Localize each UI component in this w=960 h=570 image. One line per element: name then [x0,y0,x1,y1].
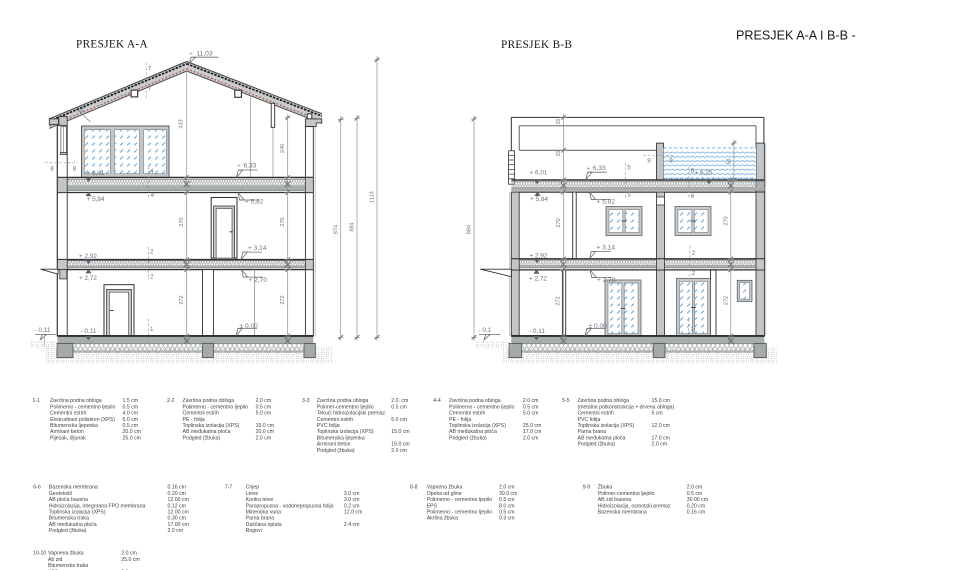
svg-text:AB ploča bazena: AB ploča bazena [49,497,88,503]
svg-text:Završna podna obloga: Završna podna obloga [183,398,235,404]
svg-text:Tekući hidroizolacijski premaz: Tekući hidroizolacijski premaz [317,411,386,417]
svg-text:- 0,11: - 0,11 [81,328,97,335]
svg-text:6: 6 [691,168,695,175]
svg-text:2-2: 2-2 [167,398,175,404]
svg-text:5: 5 [627,192,631,199]
svg-text:12.0 cm: 12.0 cm [344,510,362,516]
svg-text:PRESJEK A-A I B-B -: PRESJEK A-A I B-B - [736,29,856,43]
svg-text:+ 6,01: + 6,01 [87,170,105,177]
svg-text:0.5 cm: 0.5 cm [499,510,515,516]
svg-text:AB međukatna ploča: AB međukatna ploča [449,429,497,435]
svg-text:Vapnena žbuka: Vapnena žbuka [48,551,84,557]
svg-text:Toplinska izolacija (XPS): Toplinska izolacija (XPS) [578,423,635,429]
svg-text:0.30 cm: 0.30 cm [168,516,186,522]
svg-text:874: 874 [333,225,339,234]
svg-text:11,03: 11,03 [197,50,213,57]
svg-text:17.0 cm: 17.0 cm [652,435,670,441]
svg-text:Parna brana: Parna brana [246,516,275,522]
svg-text:+ 6,25: + 6,25 [695,170,713,177]
svg-text:12.0 cm: 12.0 cm [652,423,670,429]
svg-text:2.0 cm: 2.0 cm [168,528,184,534]
svg-text:25.0 cm: 25.0 cm [523,423,541,429]
svg-text:Bazenska membrana: Bazenska membrana [598,510,647,516]
svg-text:PVC folija: PVC folija [317,423,340,429]
svg-text:0.20 cm: 0.20 cm [687,503,705,509]
svg-text:Žbuka: Žbuka [598,483,613,491]
svg-text:- 0,11: - 0,11 [529,328,545,335]
svg-text:+ 2,92: + 2,92 [79,253,97,260]
svg-text:+ 6,01: + 6,01 [530,170,548,177]
svg-text:Akrilna žbuka: Akrilna žbuka [427,516,458,522]
svg-text:PE - folija: PE - folija [449,417,471,423]
svg-text:Toplinska izolacija (XPS): Toplinska izolacija (XPS) [183,423,240,429]
svg-text:25.0 cm: 25.0 cm [123,435,141,441]
svg-text:2.0 cm: 2.0 cm [256,398,272,404]
svg-text:884: 884 [350,222,356,231]
svg-text:3.0 cm: 3.0 cm [344,491,360,497]
svg-text:8: 8 [50,166,54,173]
svg-text:AB međukatna ploča: AB međukatna ploča [183,429,231,435]
svg-text:Kontra letve: Kontra letve [246,497,274,503]
svg-text:2: 2 [692,250,696,257]
svg-text:Geotekstil: Geotekstil [49,491,72,497]
svg-text:6,33: 6,33 [244,163,257,170]
svg-text:PVC folija: PVC folija [578,417,601,423]
svg-text:1: 1 [690,326,694,333]
svg-text:2.0 cm: 2.0 cm [121,551,137,557]
svg-text:+ 2,72: + 2,72 [529,275,547,282]
svg-text:Toplinska izolacija (XPS): Toplinska izolacija (XPS) [317,429,374,435]
svg-text:2.0 cm: 2.0 cm [391,448,407,454]
svg-text:272: 272 [723,296,729,305]
svg-text:0.5 cm: 0.5 cm [391,404,407,410]
svg-text:+ 2,92: + 2,92 [530,252,548,259]
svg-text:Polimerno - cementno ljepilo: Polimerno - cementno ljepilo [50,404,116,410]
svg-text:17.0 cm: 17.0 cm [523,429,541,435]
svg-text:Armirani beton: Armirani beton [50,429,84,435]
svg-text:Ab zid: Ab zid [48,557,63,563]
svg-text:+ 2,70: + 2,70 [597,277,616,284]
svg-text:Polimerno - cementno ljepilo: Polimerno - cementno ljepilo [449,404,515,410]
svg-text:0.5 cm: 0.5 cm [687,491,703,497]
svg-text:5-5: 5-5 [562,398,570,404]
svg-text:10-10: 10-10 [33,551,46,557]
svg-text:5.0 cm: 5.0 cm [256,411,272,417]
svg-text:7: 7 [148,66,152,73]
svg-text:Bitumenska ljepenka: Bitumenska ljepenka [50,423,98,429]
svg-text:5: 5 [627,164,631,171]
svg-text:272: 272 [556,296,562,305]
svg-text:+ 3,14: + 3,14 [248,245,267,252]
svg-text:0.3 cm: 0.3 cm [499,516,515,522]
svg-text:AB zid bazena: AB zid bazena [598,497,632,503]
svg-text:4-4: 4-4 [433,398,441,404]
svg-text:4.0 cm: 4.0 cm [123,411,139,417]
svg-text:2.4 cm: 2.4 cm [344,522,360,528]
svg-text:Bitumenska traka: Bitumenska traka [49,516,89,522]
svg-text:4: 4 [150,168,154,175]
svg-text:+ 5,84: + 5,84 [87,196,105,203]
svg-text:1.5 cm: 1.5 cm [123,398,139,404]
svg-text:Cementni estrih: Cementni estrih [578,411,614,417]
svg-text:Cementni estrih: Cementni estrih [449,411,485,417]
svg-text:Toplinska izolacija (XPS): Toplinska izolacija (XPS) [449,423,506,429]
svg-text:Bitumenska ljepenka: Bitumenska ljepenka [317,435,365,441]
svg-text:4: 4 [151,192,155,199]
svg-text:272: 272 [280,295,286,304]
svg-text:Podgled (žbuka): Podgled (žbuka) [317,448,355,454]
svg-text:06: 06 [80,107,86,113]
svg-text:270: 270 [179,217,185,226]
svg-text:7: 7 [148,86,152,93]
svg-text:272: 272 [179,295,185,304]
svg-text:PE - folija: PE - folija [183,417,205,423]
svg-text:30.00 cm: 30.00 cm [687,497,708,503]
svg-text:- 0,11: - 0,11 [35,327,51,334]
svg-text:20.0 cm: 20.0 cm [123,429,141,435]
svg-text:Bitumenska traka: Bitumenska traka [48,563,88,569]
svg-text:9: 9 [647,157,651,164]
svg-text:8-8: 8-8 [410,485,418,491]
svg-text:270: 270 [556,218,562,227]
svg-text:2: 2 [692,270,696,277]
svg-text:884: 884 [467,225,473,234]
svg-text:0.12 cm: 0.12 cm [168,503,186,509]
svg-text:9: 9 [669,157,673,164]
svg-text:EPS: EPS [427,503,438,509]
svg-text:8: 8 [73,166,77,173]
svg-text:Parna brana: Parna brana [578,429,607,435]
svg-text:Završna podna obloga: Završna podna obloga [449,398,501,404]
svg-text:Vapnena žbuka: Vapnena žbuka [427,485,463,491]
svg-text:2.0 cm: 2.0 cm [256,435,272,441]
svg-text:Rogovi: Rogovi [246,528,262,534]
svg-text:2: 2 [150,273,154,280]
svg-text:20.0 cm: 20.0 cm [256,429,274,435]
svg-text:6.0 cm: 6.0 cm [123,417,139,423]
svg-text:0.5 cm: 0.5 cm [123,423,139,429]
svg-text:Opeka od gline: Opeka od gline [427,491,462,497]
svg-text:20: 20 [556,119,562,125]
svg-text:270: 270 [723,216,729,225]
svg-text:Daščana oplata: Daščana oplata [246,522,282,528]
svg-text:15.0 cm: 15.0 cm [391,442,409,448]
svg-text:12.00 cm: 12.00 cm [168,497,189,503]
svg-text:6,33: 6,33 [593,165,606,172]
svg-text:Cementni estrih: Cementni estrih [317,417,353,423]
svg-text:2.0 cm: 2.0 cm [499,485,515,491]
svg-text:5.0 cm: 5.0 cm [391,417,407,423]
svg-text:433: 433 [179,119,185,128]
svg-text:0.5 cm: 0.5 cm [123,404,139,410]
svg-text:(metalna potkonstrukcija + drv: (metalna potkonstrukcija + drvena obloga… [578,404,675,410]
svg-text:Završna podna obloga: Završna podna obloga [578,398,630,404]
svg-text:2.0 cm: 2.0 cm [687,485,703,491]
svg-text:PRESJEK B-B: PRESJEK B-B [501,39,572,51]
svg-text:Podgled (žbuka): Podgled (žbuka) [183,435,221,441]
svg-text:Podgled (žbuka): Podgled (žbuka) [49,528,87,534]
svg-text:Završna podna obloga: Završna podna obloga [317,398,369,404]
svg-text:15.0 cm: 15.0 cm [391,429,409,435]
svg-text:1114: 1114 [370,191,376,203]
svg-text:0.5 cm: 0.5 cm [256,404,272,410]
svg-text:5.0 cm: 5.0 cm [523,411,539,417]
svg-text:+ 3,14: + 3,14 [597,244,616,251]
svg-text:Završna podna obloga: Završna podna obloga [50,398,102,404]
svg-text:Mineralna vuna: Mineralna vuna [246,510,282,516]
svg-text:Podgled (žbuka): Podgled (žbuka) [449,435,487,441]
svg-text:2.0. cm: 2.0. cm [391,398,408,404]
svg-text:Polimerno - cementno ljepilo: Polimerno - cementno ljepilo [427,497,493,503]
svg-text:Polimerno - cementno ljepilo: Polimerno - cementno ljepilo [183,404,249,410]
svg-text:Crijep: Crijep [246,485,260,491]
svg-text:2: 2 [150,249,154,256]
svg-text:0.20 cm: 0.20 cm [168,491,186,497]
svg-text:AB međukatna ploča: AB međukatna ploča [578,435,626,441]
svg-text:0.5 cm: 0.5 cm [499,497,515,503]
svg-text:50: 50 [726,159,732,165]
svg-text:Polimer-cementno ljepilo: Polimer-cementno ljepilo [317,404,374,410]
svg-text:30.0 cm: 30.0 cm [499,491,517,497]
svg-text:+ 5,84: + 5,84 [530,196,548,203]
svg-text:0.2 cm: 0.2 cm [344,503,360,509]
svg-text:8.0 cm: 8.0 cm [499,503,515,509]
svg-text:Pijesak, šljunak: Pijesak, šljunak [50,435,86,441]
svg-text:6-6: 6-6 [33,485,41,491]
svg-text:Armirani beton: Armirani beton [317,442,351,448]
svg-text:0.16 cm: 0.16 cm [687,510,705,516]
svg-text:Bazenska membrana: Bazenska membrana [49,485,98,491]
svg-text:+ 5,82: + 5,82 [245,199,264,206]
svg-text:1: 1 [150,326,154,333]
svg-text:AB međukatna ploča: AB međukatna ploča [49,522,97,528]
svg-text:270: 270 [280,217,286,226]
svg-text:1-1: 1-1 [33,398,41,404]
svg-text:Polimerno - cementno ljepilo: Polimerno - cementno ljepilo [427,510,493,516]
svg-text:± 0,00: ± 0,00 [589,323,608,330]
svg-text:9-9: 9-9 [583,485,591,491]
svg-text:3.0 cm: 3.0 cm [344,497,360,503]
svg-text:Ekstrudirani polistiren (XPS): Ekstrudirani polistiren (XPS) [50,417,115,423]
svg-text:Toplinska izolacija (XPS): Toplinska izolacija (XPS) [49,510,106,516]
svg-text:Cementni estrih: Cementni estrih [50,411,86,417]
svg-text:+ 2,72: + 2,72 [79,275,97,282]
svg-text:2.0 cm: 2.0 cm [523,435,539,441]
svg-text:240: 240 [280,144,286,153]
svg-text:3-3: 3-3 [302,398,310,404]
svg-text:+ 5,82: + 5,82 [597,199,616,206]
svg-text:0.16 cm: 0.16 cm [168,485,186,491]
svg-text:15.0 cm: 15.0 cm [652,398,670,404]
svg-text:Hidroizolacija, osmotski prema: Hidroizolacija, osmotski premaz [598,503,671,509]
svg-text:Paropropusna - vodonepropusna: Paropropusna - vodonepropusna folija [246,503,334,509]
svg-text:PRESJEK A-A: PRESJEK A-A [76,39,148,51]
svg-text:12.00 cm: 12.00 cm [168,510,189,516]
svg-text:15.0 cm: 15.0 cm [256,423,274,429]
svg-text:5 cm: 5 cm [652,411,663,417]
svg-text:2.0 cm: 2.0 cm [523,398,539,404]
svg-text:6: 6 [691,193,695,200]
svg-text:Cementni estrih: Cementni estrih [183,411,219,417]
svg-text:Polimer-cementno ljepilo: Polimer-cementno ljepilo [598,491,655,497]
svg-text:Podgled (žbuka): Podgled (žbuka) [578,442,616,448]
svg-text:Hidroizolacija, integrirana FP: Hidroizolacija, integrirana FPO membrana [49,503,146,509]
svg-text:Letve: Letve [246,491,259,497]
svg-text:7-7: 7-7 [225,485,233,491]
svg-text:+ 2,70: + 2,70 [249,277,268,284]
svg-text:0.5 cm: 0.5 cm [523,404,539,410]
svg-text:17.00 cm: 17.00 cm [168,522,189,528]
svg-text:20: 20 [556,151,562,157]
svg-text:2.0 cm: 2.0 cm [652,442,668,448]
svg-text:± 0,00: ± 0,00 [240,323,259,330]
svg-text:- 0,1: - 0,1 [479,327,492,334]
svg-text:25.0 cm: 25.0 cm [121,557,139,563]
